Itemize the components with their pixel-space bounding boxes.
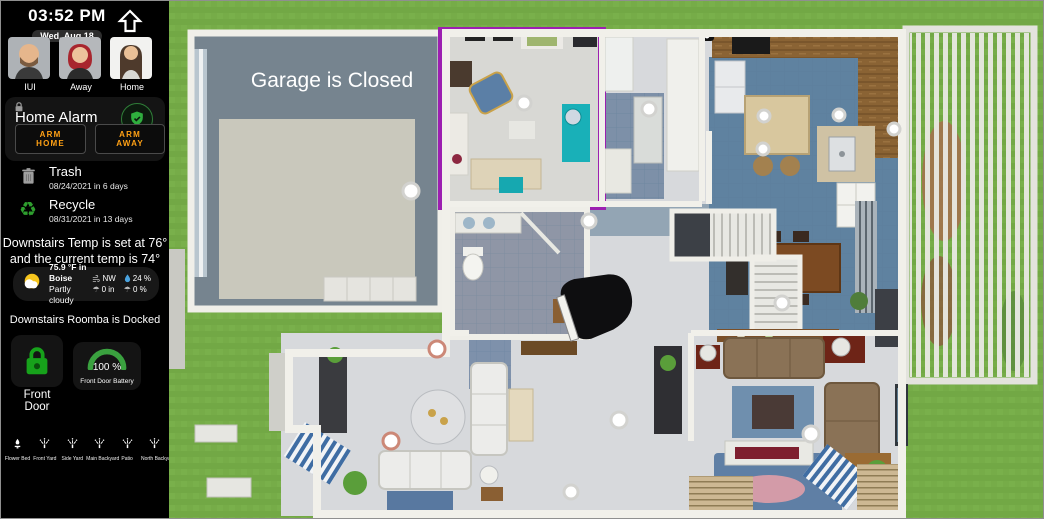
recycle-detail: 08/31/2021 in 13 days [49, 214, 133, 224]
weather-wind: NW [102, 273, 115, 284]
recycle-row[interactable]: ♻ Recycle 08/31/2021 in 13 days [17, 197, 133, 224]
garage-status-text[interactable]: Garage is Closed [251, 69, 413, 92]
precip-icon: ☂ [92, 284, 99, 295]
humidity-drop-icon [124, 274, 131, 283]
lock-small-icon [13, 100, 25, 112]
arm-home-button[interactable]: ARM HOME [15, 124, 86, 154]
pergola [906, 29, 1034, 381]
trash-detail: 08/24/2021 in 6 days [49, 181, 128, 191]
trash-icon [17, 164, 39, 188]
light-dot[interactable] [517, 96, 531, 110]
sprinkler-north-backyard[interactable]: North Backyard [141, 436, 168, 462]
floorplan-svg: Garage is Closed [169, 1, 1043, 518]
sprinkler-icon [122, 438, 133, 449]
hall-console [521, 341, 577, 355]
front-steps-2 [207, 478, 251, 497]
driveway [169, 249, 185, 369]
floorplan-panel: Garage is Closed [169, 1, 1043, 518]
weather-widget[interactable]: 75.9 °F in Boise Partly cloudy NW 24 % ☂… [13, 267, 159, 301]
person-2[interactable]: Away [59, 37, 103, 92]
person-3[interactable]: Home [110, 37, 154, 92]
light-dot[interactable] [611, 412, 627, 428]
person-1[interactable]: IUI [8, 37, 52, 92]
light-dot[interactable] [775, 296, 789, 310]
person-name: IUI [8, 82, 52, 92]
wind-icon [92, 275, 100, 283]
light-dot[interactable] [888, 123, 900, 135]
padlock-icon [20, 344, 54, 378]
trash-row[interactable]: Trash 08/24/2021 in 6 days [17, 164, 128, 191]
people-row: IUI Away Home [8, 37, 154, 92]
drip-icon [12, 438, 23, 449]
weather-precip: 0 in [102, 284, 115, 295]
thermostat-dot[interactable] [383, 433, 399, 449]
light-dot[interactable] [833, 109, 845, 121]
sidebar: 03:52 PM Wed, Aug 18 IUI Away [1, 1, 169, 518]
avatar [8, 37, 50, 79]
sprinkler-icon [39, 438, 50, 449]
front-steps-1 [195, 425, 237, 442]
sprinkler-icon [67, 438, 78, 449]
clock-time: 03:52 PM [21, 6, 113, 26]
sprinkler-icon [149, 438, 160, 449]
precip-prob-icon: ☂ [124, 284, 131, 295]
light-dot[interactable] [403, 183, 419, 199]
thermostat-dot[interactable] [429, 341, 445, 357]
recycle-label: Recycle [49, 197, 133, 212]
sprinkler-flower-bed[interactable]: Flower Bed [4, 436, 31, 462]
partly-cloudy-icon [21, 271, 43, 298]
sprinkler-patio[interactable]: Patio [114, 436, 141, 462]
sprinkler-row: Flower Bed Front Yard Side Yard Main Bac… [4, 436, 168, 462]
front-door-battery-tile[interactable]: 100 % Front Door Battery [73, 342, 141, 390]
alarm-buttons: ARM HOME ARM AWAY [15, 124, 165, 154]
highlighted-room-office[interactable] [442, 31, 602, 206]
weather-temp: 75.9 °F in Boise [49, 262, 86, 284]
battery-value: 100 % [73, 362, 141, 373]
light-dot[interactable] [757, 143, 769, 155]
sprinkler-side-yard[interactable]: Side Yard [59, 436, 86, 462]
sprinkler-icon [94, 438, 105, 449]
app-window: 03:52 PM Wed, Aug 18 IUI Away [0, 0, 1044, 519]
home-up-arrow-icon[interactable] [117, 8, 143, 34]
light-dot[interactable] [564, 485, 578, 499]
front-door-lock-tile[interactable] [11, 335, 63, 387]
sprinkler-front-yard[interactable]: Front Yard [31, 436, 58, 462]
avatar [110, 37, 152, 79]
battery-label: Front Door Battery [73, 378, 141, 385]
weather-humidity: 24 % [133, 273, 151, 284]
home-alarm-card: Home Alarm ARM HOME ARM AWAY [5, 97, 165, 161]
weather-condition: Partly cloudy [49, 284, 86, 306]
avatar [59, 37, 101, 79]
light-dot[interactable] [803, 426, 819, 442]
recycle-icon: ♻ [17, 197, 39, 221]
trash-label: Trash [49, 164, 128, 179]
roomba-status-message: Downstairs Roomba is Docked [1, 314, 169, 326]
sprinkler-main-backyard[interactable]: Main Backyard [86, 436, 113, 462]
person-name: Away [59, 82, 103, 92]
front-door-label: Front Door [11, 389, 63, 413]
light-dot[interactable] [642, 102, 656, 116]
arm-away-button[interactable]: ARM AWAY [95, 124, 165, 154]
weather-precip-prob: 0 % [133, 284, 147, 295]
light-dot[interactable] [582, 214, 596, 228]
person-name: Home [110, 82, 154, 92]
light-dot[interactable] [758, 110, 770, 122]
